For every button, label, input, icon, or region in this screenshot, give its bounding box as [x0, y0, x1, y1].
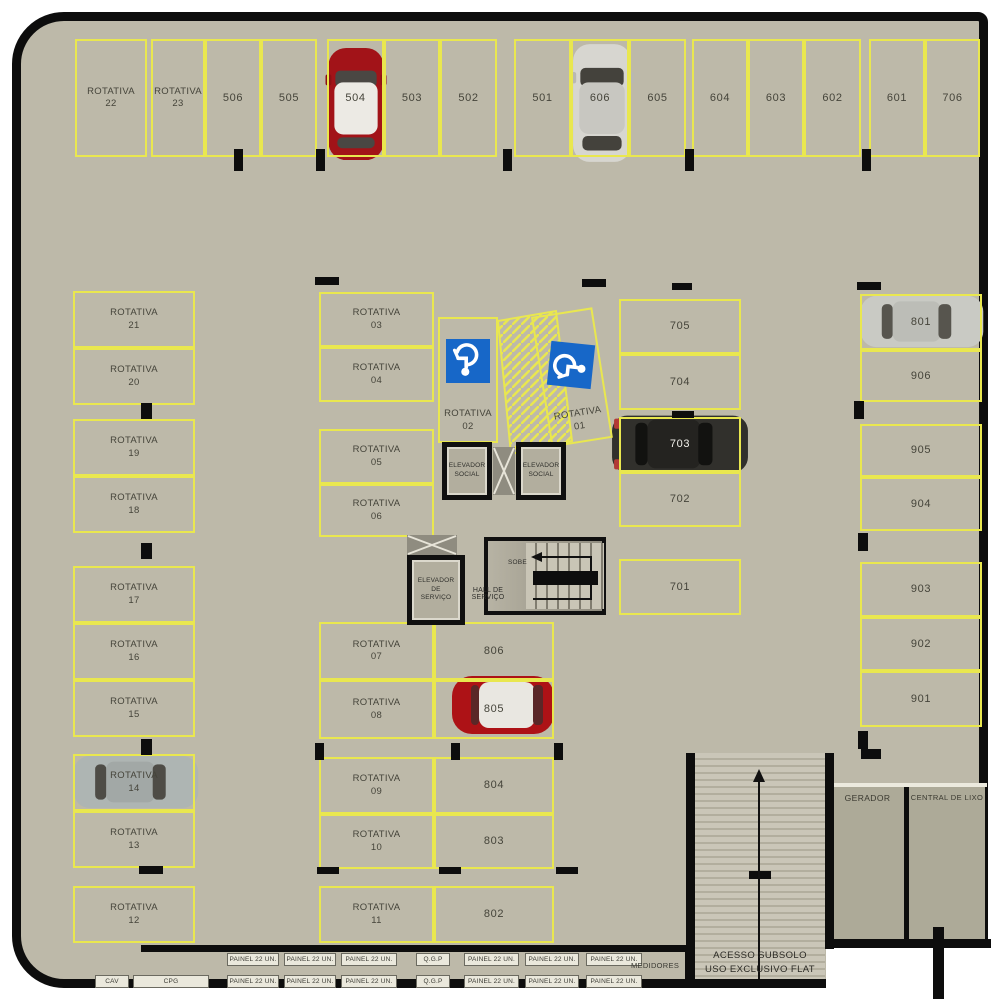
panel-label: PAINEL 22 UN.	[345, 978, 392, 985]
panel-label: PAINEL 22 UN.	[468, 956, 515, 963]
stall-rotativa-05: ROTATIVA 05	[319, 429, 434, 484]
column-marker	[858, 731, 868, 749]
stall-503: 503	[384, 39, 440, 157]
room-back-wall	[825, 939, 991, 948]
panel-box: PAINEL 22 UN.	[525, 953, 579, 966]
column-marker	[672, 283, 692, 290]
stall-label: 602	[822, 91, 842, 105]
stall-label: ROTATIVA 16	[110, 639, 158, 664]
stall-903: 903	[860, 562, 982, 617]
stall-604: 604	[692, 39, 748, 157]
stall-label: 904	[911, 497, 931, 511]
stall-505: 505	[261, 39, 317, 157]
column-marker	[554, 743, 563, 760]
stall-label: 502	[458, 91, 478, 105]
stall-label: 806	[484, 644, 504, 658]
stall-label: 505	[279, 91, 299, 105]
stall-label: ROTATIVA 15	[110, 696, 158, 721]
stall-label: 703	[670, 437, 690, 451]
stall-602: 602	[804, 39, 861, 157]
qgp-box: Q.G.P	[416, 953, 450, 966]
elevator-label: ELEVADOR SOCIAL	[449, 462, 486, 480]
stall-label: ROTATIVA 12	[110, 902, 158, 927]
stall-rotativa-21: ROTATIVA 21	[73, 291, 195, 348]
stall-label: ROTATIVA 13	[110, 827, 158, 852]
stall-rotativa-06: ROTATIVA 06	[319, 484, 434, 537]
wheelchair-icon	[446, 339, 490, 383]
panel-label: PAINEL 22 UN.	[528, 956, 575, 963]
column-marker	[141, 543, 152, 559]
stall-804: 804	[434, 757, 554, 814]
stall-706: 706	[925, 39, 980, 157]
stall-label: ROTATIVA 09	[353, 773, 401, 798]
stall-705: 705	[619, 299, 741, 354]
panel-box: PAINEL 22 UN.	[227, 975, 279, 988]
stall-label: ROTATIVA 11	[353, 902, 401, 927]
stall-rotativa-14: ROTATIVA 14	[73, 754, 195, 811]
stall-label: 501	[532, 91, 552, 105]
meters-room-wall	[141, 945, 691, 952]
room-divider-wall	[904, 787, 909, 939]
stall-label: 805	[484, 702, 504, 716]
stall-label: ROTATIVA 23	[154, 86, 202, 111]
panel-box: PAINEL 22 UN.	[586, 975, 642, 988]
stall-805: 805	[434, 680, 554, 739]
stall-label: 606	[590, 91, 610, 105]
stall-502: 502	[440, 39, 497, 157]
stall-rotativa-16: ROTATIVA 16	[73, 623, 195, 680]
column-marker	[439, 867, 461, 874]
stall-rotativa-10: ROTATIVA 10	[319, 814, 434, 869]
elevator-social-right: ELEVADOR SOCIAL	[516, 442, 566, 500]
stall-label: ROTATIVA 01	[553, 405, 604, 437]
stall-label: 903	[911, 582, 931, 596]
elevator-service: ELEVADOR DE SERVIÇO	[407, 555, 465, 625]
parking-floor-plan: ROTATIVA 22 ROTATIVA 23 506 505 504 503 …	[0, 0, 1000, 1000]
stall-label: ROTATIVA 19	[110, 435, 158, 460]
elevator-label: ELEVADOR DE SERVIÇO	[418, 577, 455, 603]
qgp-box: Q.G.P	[416, 975, 450, 988]
elevator-social-left: ELEVADOR SOCIAL	[442, 442, 492, 500]
stall-802: 802	[434, 886, 554, 943]
stall-label: 603	[766, 91, 786, 105]
elevator-shaft-x	[493, 447, 515, 495]
stall-rotativa-04: ROTATIVA 04	[319, 347, 434, 402]
trash-room: CENTRAL DE LIXO	[909, 787, 985, 939]
panel-label: PAINEL 22 UN.	[345, 956, 392, 963]
stall-label: ROTATIVA 06	[353, 498, 401, 523]
stall-label: 801	[911, 315, 931, 329]
stall-label: 704	[670, 375, 690, 389]
service-shaft-x	[407, 535, 457, 555]
stall-label: ROTATIVA 21	[110, 307, 158, 332]
cpg-box: CPG	[133, 975, 209, 988]
stall-603: 603	[748, 39, 804, 157]
stall-label: 701	[670, 580, 690, 594]
stall-label: ROTATIVA 07	[353, 639, 401, 664]
panel-label: PAINEL 22 UN.	[229, 978, 276, 985]
stall-504: 504	[327, 39, 384, 157]
stall-905: 905	[860, 424, 982, 477]
panel-box: PAINEL 22 UN.	[341, 975, 397, 988]
panel-label: PAINEL 22 UN.	[286, 978, 333, 985]
stall-label: 804	[484, 778, 504, 792]
stall-803: 803	[434, 814, 554, 869]
column-marker	[685, 149, 694, 171]
stall-601: 601	[869, 39, 925, 157]
panel-box: PAINEL 22 UN.	[341, 953, 397, 966]
stall-label: ROTATIVA 08	[353, 697, 401, 722]
stall-704: 704	[619, 354, 741, 410]
stall-rotativa-20: ROTATIVA 20	[73, 348, 195, 405]
stall-rotativa-17: ROTATIVA 17	[73, 566, 195, 623]
stall-label: 604	[710, 91, 730, 105]
panel-box: PAINEL 22 UN.	[464, 953, 519, 966]
stall-801: 801	[860, 294, 982, 350]
column-marker	[854, 401, 864, 419]
generator-room: GERADOR	[831, 787, 904, 939]
stall-rotativa-18: ROTATIVA 18	[73, 476, 195, 533]
column-marker	[141, 403, 152, 419]
stall-label: 902	[911, 637, 931, 651]
column-marker	[315, 743, 324, 760]
column-marker	[317, 867, 339, 874]
trash-label: CENTRAL DE LIXO	[909, 793, 985, 802]
stall-label: 705	[670, 319, 690, 333]
stall-501: 501	[514, 39, 571, 157]
stall-label: ROTATIVA 04	[353, 362, 401, 387]
stall-label: ROTATIVA 10	[353, 829, 401, 854]
column-marker	[316, 149, 325, 171]
stall-703: 703	[619, 417, 741, 472]
stall-label: ROTATIVA 02	[444, 408, 492, 433]
stall-label: 901	[911, 692, 931, 706]
column-marker	[857, 282, 881, 290]
stall-label: ROTATIVA 03	[353, 307, 401, 332]
stall-rotativa-09: ROTATIVA 09	[319, 757, 434, 814]
column-marker	[582, 279, 606, 287]
column-marker	[141, 739, 152, 755]
garage-outline: ROTATIVA 22 ROTATIVA 23 506 505 504 503 …	[12, 12, 988, 988]
panel-label: PAINEL 22 UN.	[229, 956, 276, 963]
stall-rotativa-11: ROTATIVA 11	[319, 886, 434, 943]
meters-label: MEDIDORES	[631, 961, 679, 970]
stall-label: 506	[223, 91, 243, 105]
stall-506: 506	[205, 39, 261, 157]
meters-room-wall-right	[685, 945, 693, 979]
panel-box: PAINEL 22 UN.	[525, 975, 579, 988]
column-marker	[234, 149, 243, 171]
column-marker	[503, 149, 512, 171]
hall-label: HALL DE SERVIÇO	[465, 587, 511, 601]
generator-label: GERADOR	[831, 793, 904, 803]
ramp-label: ACESSO SUBSOLO USO EXCLUSIVO FLAT	[697, 949, 823, 977]
stall-label: 605	[647, 91, 667, 105]
building-notch	[826, 941, 1000, 1000]
ramp-wall-right	[825, 753, 834, 949]
stall-label: 802	[484, 907, 504, 921]
stall-label: ROTATIVA 18	[110, 492, 158, 517]
stair-room	[484, 537, 606, 615]
stall-702: 702	[619, 472, 741, 527]
panel-label: PAINEL 22 UN.	[286, 956, 333, 963]
stall-rotativa-12: ROTATIVA 12	[73, 886, 195, 943]
stall-label: 601	[887, 91, 907, 105]
stall-label: ROTATIVA 05	[353, 444, 401, 469]
column-marker	[315, 277, 339, 285]
stall-rotativa-15: ROTATIVA 15	[73, 680, 195, 737]
stall-904: 904	[860, 477, 982, 531]
qgp-label: Q.G.P	[423, 978, 442, 985]
panel-label: PAINEL 22 UN.	[590, 978, 637, 985]
stall-label: ROTATIVA 20	[110, 364, 158, 389]
stall-label: 803	[484, 834, 504, 848]
panel-box: PAINEL 22 UN.	[464, 975, 519, 988]
stall-label: ROTATIVA 14	[110, 770, 158, 795]
stall-rotativa-19: ROTATIVA 19	[73, 419, 195, 476]
stall-902: 902	[860, 617, 982, 671]
column-marker	[862, 149, 871, 171]
stall-rotativa-23: ROTATIVA 23	[151, 39, 205, 157]
stair-landing	[533, 571, 598, 585]
corner-wall-stub	[933, 927, 944, 999]
stall-rotativa-07: ROTATIVA 07	[319, 622, 434, 680]
elevator-label: ELEVADOR SOCIAL	[523, 462, 560, 480]
stall-label: 702	[670, 492, 690, 506]
wheel-stop	[672, 411, 694, 418]
stall-label: 906	[911, 369, 931, 383]
stall-label: ROTATIVA 17	[110, 582, 158, 607]
wheelchair-icon	[547, 341, 595, 389]
column-marker	[858, 533, 868, 551]
stall-606: 606	[571, 39, 629, 157]
stall-label: 706	[942, 91, 962, 105]
stall-rotativa-08: ROTATIVA 08	[319, 680, 434, 739]
stall-label: 504	[345, 91, 365, 105]
stall-rotativa-22: ROTATIVA 22	[75, 39, 147, 157]
stall-label: ROTATIVA 22	[87, 86, 135, 111]
column-marker	[139, 866, 163, 874]
stall-label: 905	[911, 443, 931, 457]
stall-rotativa-03: ROTATIVA 03	[319, 292, 434, 347]
stall-906: 906	[860, 350, 982, 402]
panel-label: PAINEL 22 UN.	[528, 978, 575, 985]
stall-901: 901	[860, 671, 982, 727]
cpg-label: CPG	[164, 978, 179, 985]
cav-label: CAV	[105, 978, 118, 985]
column-marker	[556, 867, 578, 874]
panel-box: PAINEL 22 UN.	[227, 953, 279, 966]
column-marker	[451, 743, 460, 760]
stall-label: 503	[402, 91, 422, 105]
column-marker	[861, 749, 881, 759]
stall-605: 605	[629, 39, 686, 157]
stall-806: 806	[434, 622, 554, 680]
stall-rotativa-13: ROTATIVA 13	[73, 811, 195, 868]
qgp-label: Q.G.P	[423, 956, 442, 963]
stairs-up-label: SOBE	[508, 559, 527, 566]
panel-box: PAINEL 22 UN.	[284, 975, 336, 988]
stall-701: 701	[619, 559, 741, 615]
panel-label: PAINEL 22 UN.	[468, 978, 515, 985]
panel-box: PAINEL 22 UN.	[284, 953, 336, 966]
cav-box: CAV	[95, 975, 129, 988]
